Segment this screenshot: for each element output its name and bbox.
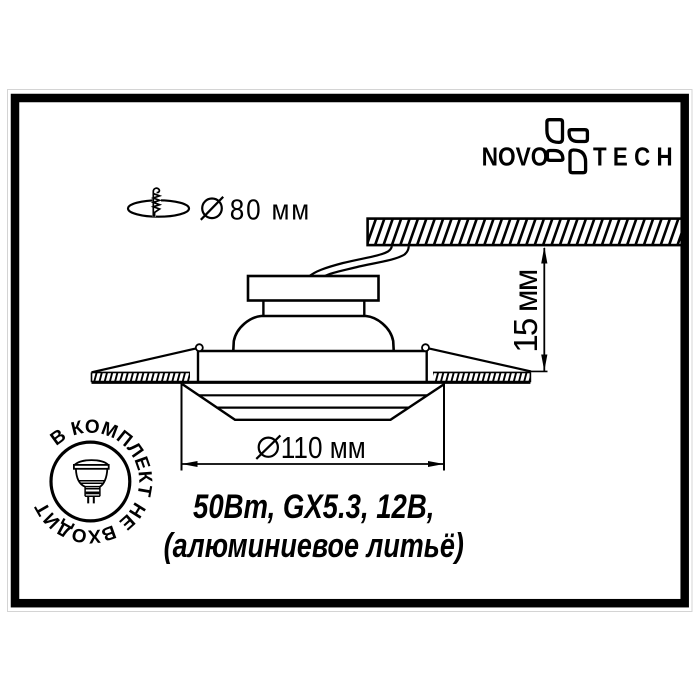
svg-text:15 мм: 15 мм bbox=[507, 269, 544, 353]
svg-text:50Вт, GX5.3, 12В,: 50Вт, GX5.3, 12В, bbox=[193, 487, 434, 525]
svg-text:NOVO: NOVO bbox=[482, 143, 549, 172]
svg-text:TECH: TECH bbox=[593, 143, 679, 172]
svg-text:80 мм: 80 мм bbox=[230, 193, 311, 226]
svg-text:(алюминиевое литьё): (алюминиевое литьё) bbox=[164, 526, 464, 565]
svg-text:110 мм: 110 мм bbox=[281, 431, 366, 465]
